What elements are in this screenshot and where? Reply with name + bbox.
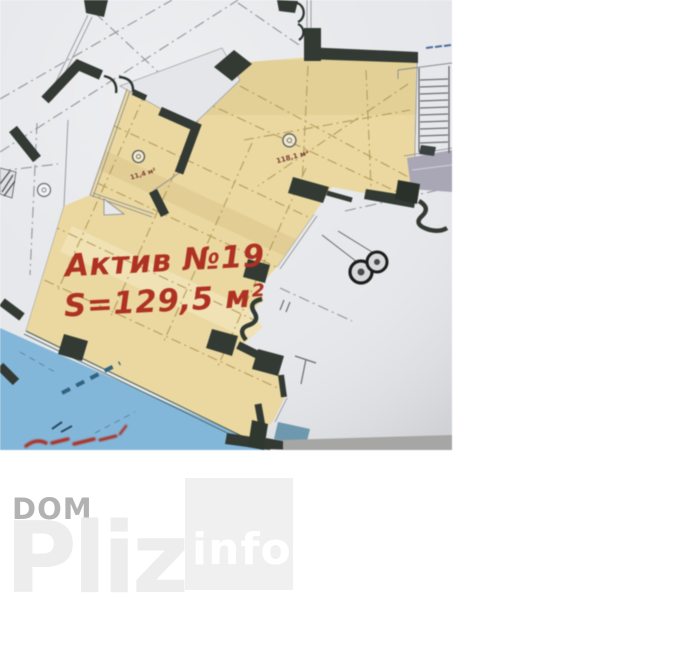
watermark-info-text: info [192, 528, 292, 572]
listing-photo-page: 11,4 м² 118,1 м² Актив №19 S=129,5 м² DO… [0, 0, 677, 646]
floor-plan-photo: 11,4 м² 118,1 м² Актив №19 S=129,5 м² [0, 0, 452, 450]
watermark-pliz-text: Pliz [5, 510, 185, 608]
